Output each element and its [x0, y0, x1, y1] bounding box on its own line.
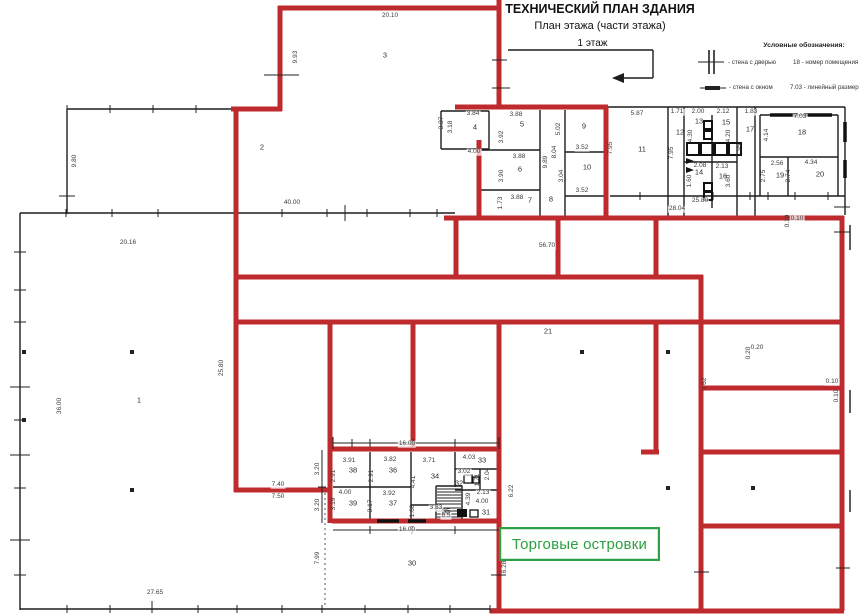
room-number: 36: [389, 466, 397, 474]
dimension-label: 2.91: [331, 469, 338, 484]
entrance-arrow-icon: [612, 73, 624, 83]
dimension-label: 2.75: [761, 169, 768, 184]
floor-plan-page: ТЕХНИЧЕСКИЙ ПЛАН ЗДАНИЯ План этажа (част…: [0, 0, 863, 614]
room-number: 2: [260, 143, 264, 151]
dimension-label: 7.40: [271, 482, 286, 489]
page-subtitle: План этажа (части этажа): [505, 20, 695, 32]
dimension-label: 25.80: [691, 198, 709, 205]
room-number: 17: [746, 125, 754, 133]
dimension-label: 3.91: [342, 458, 357, 465]
room-number: 20: [816, 170, 824, 178]
dimension-label: 3.37: [439, 116, 446, 131]
page-title: ТЕХНИЧЕСКИЙ ПЛАН ЗДАНИЯ: [505, 2, 695, 16]
dimension-label: 3.17: [368, 499, 375, 514]
dimension-label: 1.71: [670, 109, 685, 116]
dimension-label: 3.04: [559, 169, 566, 184]
window-symbols: [377, 115, 845, 521]
room-number: 4: [473, 123, 477, 131]
room-number: 33: [478, 456, 486, 464]
dimension-label: 8.04: [552, 145, 559, 160]
legend-dimension-label: 7.03 - линейный размер: [790, 84, 859, 91]
room-number: 6: [518, 165, 522, 173]
dimension-label: 4.00: [338, 490, 353, 497]
red-walls: [231, 0, 844, 611]
dimension-label: 3.92: [382, 491, 397, 498]
dimension-label: 3.88: [510, 195, 525, 202]
trade-islands-annotation: Торговые островки: [499, 527, 660, 561]
dimension-label: 3.52: [575, 188, 590, 195]
dimension-label: 9.80: [72, 154, 79, 169]
dimension-label: 2.91: [369, 469, 376, 484]
trade-islands-label: Торговые островки: [512, 536, 647, 553]
dimension-label: 16.00: [398, 441, 416, 448]
wall-with-door-icon: [698, 50, 724, 74]
floor-label: 1 этаж: [505, 38, 680, 49]
room-number: 9: [582, 122, 586, 130]
dimension-label: 3.88: [509, 112, 524, 119]
dimension-label: 4.39: [466, 492, 473, 507]
dimension-label: 3.71: [422, 458, 437, 465]
dimension-label: 7.95: [669, 146, 676, 161]
room-number: 34: [431, 472, 439, 480]
dimension-label: 2.56: [770, 161, 785, 168]
dimension-label: 3.18: [448, 120, 455, 135]
room-number: 32: [455, 479, 463, 487]
room-number: 13: [695, 117, 703, 125]
dimension-label: 20.10: [381, 13, 399, 20]
dimension-label: 36.00: [57, 397, 64, 415]
dimension-label: 2.13: [715, 164, 730, 171]
room-number: 19: [776, 171, 784, 179]
room-number: 21: [544, 327, 552, 335]
room-number: 18: [798, 128, 806, 136]
dimension-label: 4.03: [462, 455, 477, 462]
legend-title: Условные обозначения:: [748, 42, 860, 49]
dimension-label: 7.03: [793, 114, 808, 121]
room-number: 1: [137, 396, 141, 404]
dimension-label: 0.20: [746, 346, 753, 361]
dimension-label: 2.00: [691, 109, 706, 116]
dimension-label: 7.50: [271, 494, 286, 501]
room-number: 15: [722, 118, 730, 126]
room-number: 8: [549, 195, 553, 203]
dimension-label: 25.80: [219, 359, 226, 377]
room-number: 14: [695, 168, 703, 176]
dimension-label: 4.20: [726, 129, 733, 144]
dimension-label: 56.70: [538, 243, 556, 250]
dimension-label: 3.90: [499, 169, 506, 184]
dimension-label: 2.12: [716, 109, 731, 116]
dimension-label: 9.93: [293, 50, 300, 65]
dimension-label: 3.02: [457, 469, 472, 476]
dimension-label: 3.20: [315, 498, 322, 513]
dimension-label: 0.10: [825, 379, 840, 386]
dimension-label: 27.65: [146, 590, 164, 597]
dimension-label: 3.19: [331, 497, 338, 512]
dimension-label: 1.60: [687, 174, 694, 189]
dimension-label: 0.10: [834, 389, 841, 404]
dimension-label: 3.88: [512, 154, 527, 161]
room-number: 35: [442, 507, 450, 515]
dimension-label: 3.92: [499, 130, 506, 145]
dimension-label: 3.20: [315, 462, 322, 477]
dimension-label: 7.99: [315, 551, 322, 566]
room-number: 16: [719, 172, 727, 180]
legend-door-label: - стена с дверью: [728, 59, 776, 66]
dimension-label: 1.68: [410, 504, 417, 519]
dimension-label: 0.62: [702, 377, 709, 392]
dimension-label: 2.04: [485, 467, 492, 482]
dimension-label: 5.87: [630, 111, 645, 118]
dimension-label: 28.04: [668, 206, 686, 213]
room-number: 31: [482, 508, 490, 516]
dimension-label: 0.10: [785, 214, 792, 229]
room-number: 12: [676, 128, 684, 136]
dimension-label: 4.34: [804, 160, 819, 167]
room-number: 39: [349, 499, 357, 507]
room-number: 5: [520, 120, 524, 128]
room-number: 38: [349, 466, 357, 474]
dimension-label: 2.74: [786, 169, 793, 184]
dimension-label: 4.14: [764, 128, 771, 143]
dimension-label: 4.30: [688, 129, 695, 144]
dimension-label: 0.10: [790, 216, 805, 223]
dimension-label: 2.13: [476, 490, 491, 497]
dimension-label: 6.28: [502, 560, 509, 575]
dimension-label: 3.82: [383, 457, 398, 464]
dimension-label: 40.00: [283, 200, 301, 207]
floor-plan-drawing: [0, 0, 863, 614]
room-number: 7: [528, 196, 532, 204]
room-number: 3: [383, 51, 387, 59]
dimension-label: 1.73: [498, 196, 505, 211]
dimension-label: 7.95: [737, 143, 744, 158]
dimension-label: 16.00: [398, 527, 416, 534]
room-number: 30: [408, 559, 416, 567]
dimension-label: 4.00: [467, 149, 482, 156]
dimension-label: 4.00: [475, 499, 490, 506]
dimension-label: 4.41: [411, 475, 418, 490]
dimension-label: 9.89: [543, 155, 550, 170]
room-number: 10: [583, 163, 591, 171]
room-number: 11: [638, 145, 646, 153]
dimension-label: 5.02: [556, 122, 563, 137]
dimension-label: 6.22: [509, 484, 516, 499]
legend-window-label: - стена с окном: [729, 84, 773, 91]
dimension-label: 1.83: [744, 109, 759, 116]
dimension-label: 20.16: [119, 240, 137, 247]
dimension-label: 3.52: [575, 145, 590, 152]
dimension-label: 1.71: [475, 473, 482, 488]
dimension-label: 3.84: [466, 111, 481, 118]
legend-room-number-label: 18 - номер помещения: [793, 59, 858, 66]
room-number: 37: [389, 499, 397, 507]
dimension-label: 7.95: [608, 141, 615, 156]
